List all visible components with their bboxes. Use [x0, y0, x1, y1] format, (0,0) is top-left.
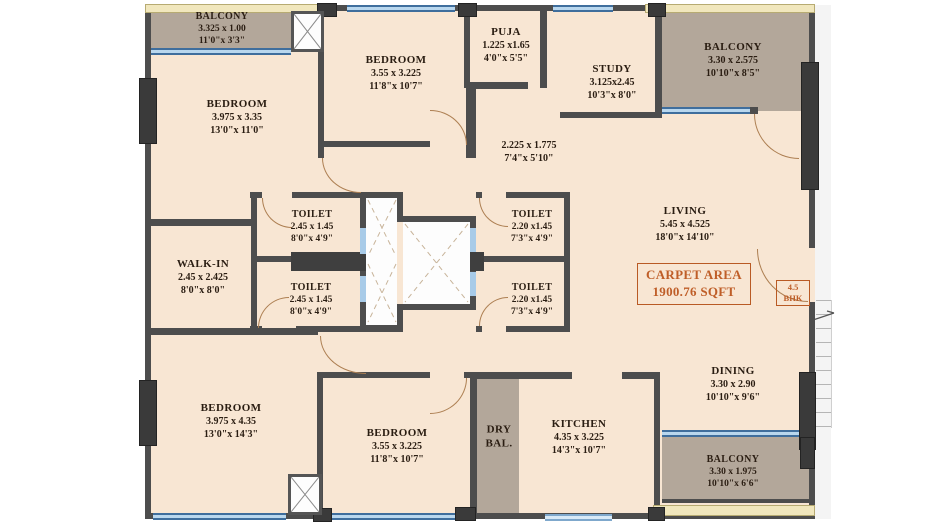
room-label-bedroom-4: BEDROOM 3.55 x 3.225 11'8"x 10'7" — [367, 426, 428, 466]
room-label-kitchen: KITCHEN 4.35 x 3.225 14'3"x 10'7" — [552, 417, 607, 457]
duct-cross-icon — [291, 477, 319, 512]
wall — [317, 372, 430, 378]
room-label-toilet-lower-right: TOILET 2.20 x1.45 7'3"x 4'9" — [511, 281, 553, 319]
window — [151, 48, 291, 55]
wall — [145, 219, 257, 226]
wall — [291, 252, 367, 271]
room-label-balcony-bottom-right: BALCONY 3.30 x 1.975 10'10"x 6'6" — [707, 453, 760, 491]
bhk-badge: 4.5 BHK — [776, 280, 810, 306]
window — [662, 430, 809, 437]
wall — [662, 499, 809, 503]
window — [347, 5, 455, 12]
room-label-passage: 2.225 x 1.775 7'4"x 5'10" — [502, 139, 557, 165]
room-label-bedroom-3: BEDROOM 3.975 x 4.35 13'0"x 14'3" — [201, 401, 262, 441]
room-label-balcony-top-right: BALCONY 3.30 x 2.575 10'10"x 8'5" — [704, 40, 762, 80]
shaft-cross-icon — [360, 192, 476, 332]
column — [801, 62, 819, 190]
wall — [292, 192, 366, 198]
column — [648, 3, 666, 17]
room-label-living: LIVING 5.45 x 4.525 18'0"x 14'10" — [655, 204, 714, 244]
room-label-balcony-top-left: BALCONY 3.325 x 1.00 11'0"x 3'3" — [196, 10, 249, 48]
wall — [464, 11, 470, 88]
room-label-puja: PUJA 1.225 x1.65 4'0"x 5'5" — [482, 25, 530, 65]
wall — [622, 372, 658, 379]
wall — [540, 11, 547, 88]
room-label-dining: DINING 3.30 x 2.90 10'10"x 9'6" — [706, 364, 760, 404]
wall — [145, 328, 318, 335]
wall — [506, 326, 570, 332]
wall — [655, 11, 662, 118]
room-label-toilet-upper-left: TOILET 2.45 x 1.45 8'0"x 4'9" — [291, 208, 334, 246]
window — [553, 5, 613, 12]
wall — [564, 192, 570, 332]
wall — [654, 372, 660, 519]
wall — [470, 372, 477, 519]
wall — [470, 372, 572, 379]
room-label-bedroom-2: BEDROOM 3.55 x 3.225 11'8"x 10'7" — [366, 53, 427, 93]
wall — [318, 141, 430, 147]
duct-cross-icon — [294, 14, 321, 49]
wall — [476, 256, 570, 262]
wall — [476, 326, 482, 332]
room-label-toilet-lower-left: TOILET 2.45 x 1.45 8'0"x 4'9" — [290, 281, 333, 319]
wall — [560, 112, 658, 118]
room-label-dry-balcony: DRY BAL. — [486, 423, 513, 452]
room-label-bedroom-1: BEDROOM 3.975 x 3.35 13'0"x 11'0" — [207, 97, 268, 137]
window — [325, 513, 455, 520]
stairs-arrow-icon — [812, 308, 838, 324]
column — [800, 437, 815, 469]
carpet-area-badge: CARPET AREA 1900.76 SQFT — [637, 263, 751, 305]
column — [139, 78, 157, 144]
exterior-band — [653, 505, 815, 516]
room-label-study: STUDY 3.125x2.45 10'3"x 8'0" — [587, 62, 636, 102]
wall — [250, 192, 262, 198]
floor-plan: BALCONY 3.325 x 1.00 11'0"x 3'3" BEDROOM… — [0, 0, 945, 525]
wall — [466, 82, 476, 158]
column — [458, 3, 477, 17]
column — [648, 507, 665, 521]
room-label-toilet-upper-right: TOILET 2.20 x1.45 7'3"x 4'9" — [511, 208, 553, 246]
window — [662, 107, 750, 114]
exterior-band — [645, 4, 815, 13]
wall — [506, 192, 570, 198]
wall — [750, 107, 758, 114]
wall — [476, 82, 528, 89]
window — [545, 514, 612, 521]
wall — [251, 192, 257, 332]
window — [153, 513, 286, 520]
room-label-walk-in: WALK-IN 2.45 x 2.425 8'0"x 8'0" — [177, 257, 229, 297]
column — [455, 507, 476, 521]
column — [139, 380, 157, 446]
